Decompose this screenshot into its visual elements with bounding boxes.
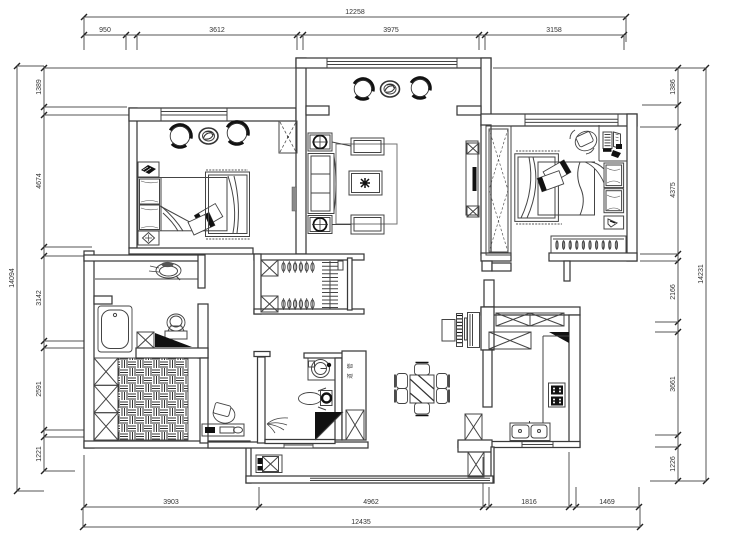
svg-text:1469: 1469: [599, 499, 615, 506]
svg-text:12435: 12435: [351, 519, 371, 526]
svg-text:3158: 3158: [546, 27, 562, 34]
svg-text:3975: 3975: [383, 27, 399, 34]
svg-text:14231: 14231: [698, 264, 705, 284]
svg-text:14094: 14094: [9, 268, 16, 288]
svg-text:950: 950: [99, 27, 111, 34]
svg-text:1226: 1226: [670, 456, 677, 472]
svg-text:4674: 4674: [36, 173, 43, 189]
svg-text:管: 管: [346, 363, 354, 369]
svg-text:2591: 2591: [36, 381, 43, 397]
svg-text:2166: 2166: [670, 284, 677, 300]
svg-text:3612: 3612: [209, 27, 225, 34]
svg-text:道: 道: [346, 373, 354, 379]
svg-text:1386: 1386: [670, 79, 677, 95]
svg-text:3661: 3661: [670, 376, 677, 392]
svg-text:1816: 1816: [521, 499, 537, 506]
svg-text:1221: 1221: [36, 446, 43, 462]
svg-text:3903: 3903: [163, 499, 179, 506]
svg-text:1389: 1389: [36, 79, 43, 95]
svg-text:4375: 4375: [670, 182, 677, 198]
svg-text:4962: 4962: [363, 499, 379, 506]
svg-text:12258: 12258: [345, 9, 365, 16]
svg-text:3142: 3142: [36, 290, 43, 306]
